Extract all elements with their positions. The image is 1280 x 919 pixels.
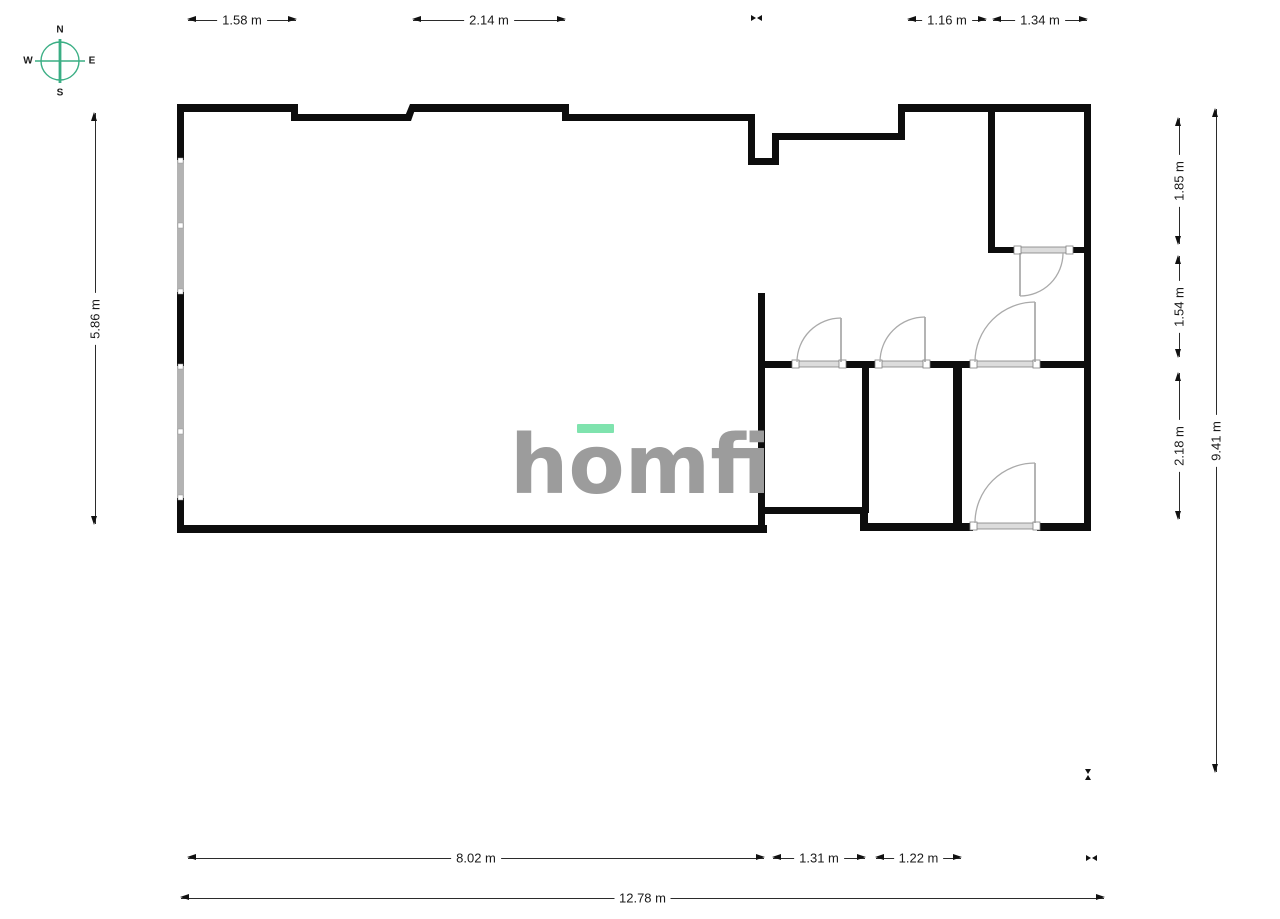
wall-segment xyxy=(898,104,1091,112)
window-mullion xyxy=(178,495,183,500)
wall-segment xyxy=(748,114,755,165)
door-swing-arc xyxy=(797,318,841,362)
arrow-right-icon xyxy=(756,854,765,860)
dimension-label: 1.31 m xyxy=(794,851,844,866)
floor-plan-page: N S W E homfi 1.58 m 2.14 m 1.16 m 1.34 … xyxy=(0,0,1280,919)
door-hinge xyxy=(970,360,977,368)
arrow-left-icon xyxy=(992,16,1001,22)
door-swing-arc xyxy=(975,463,1035,523)
arrow-right-icon xyxy=(288,16,297,22)
wall-bottom-exterior xyxy=(1037,523,1091,531)
arrow-up-icon xyxy=(1212,108,1218,117)
arrow-right-icon xyxy=(557,16,566,22)
window-mullion xyxy=(178,158,183,163)
arrow-left-icon xyxy=(772,854,781,860)
dimension-top-4: 1.34 m xyxy=(992,13,1088,27)
wall-segment xyxy=(291,114,407,121)
compass-north-label: N xyxy=(56,25,63,36)
dimension-label: 1.16 m xyxy=(922,13,972,28)
arrow-down-icon xyxy=(1175,511,1181,520)
wall-interior xyxy=(927,361,973,368)
wall-interior xyxy=(758,361,795,368)
arrow-up-icon xyxy=(1175,117,1181,126)
arrow-up-icon xyxy=(91,112,97,121)
collapsed-dimension-mark xyxy=(751,15,762,22)
compass-south-label: S xyxy=(57,88,64,99)
logo-accent-bar xyxy=(577,424,614,433)
wall-interior xyxy=(988,247,1018,253)
window-mullion xyxy=(178,364,183,369)
arrow-left-icon xyxy=(187,16,196,22)
wall-left-exterior xyxy=(177,292,184,366)
arrow-right-icon xyxy=(978,16,987,22)
wall-segment xyxy=(562,114,755,121)
dimension-label: 12.78 m xyxy=(614,891,671,906)
arrow-right-icon xyxy=(953,854,962,860)
collapsed-dimension-mark xyxy=(1085,769,1092,780)
dimension-label: 1.22 m xyxy=(894,851,944,866)
arrow-down-icon xyxy=(1175,236,1181,245)
arrow-left-icon xyxy=(187,854,196,860)
wall-interior xyxy=(953,368,962,528)
arrow-up-icon xyxy=(1175,255,1181,264)
logo-letter: h xyxy=(510,418,568,513)
dimension-left-1: 5.86 m xyxy=(88,112,102,525)
doors xyxy=(792,246,1073,530)
window-mullion xyxy=(178,223,183,228)
dimension-label: 8.02 m xyxy=(451,851,501,866)
dimension-label: 1.34 m xyxy=(1015,13,1065,28)
window-mullion xyxy=(178,289,183,294)
dimension-label: 1.54 m xyxy=(1172,281,1187,333)
dimension-right-2: 1.54 m xyxy=(1172,255,1186,358)
door-hinge xyxy=(839,360,846,368)
wall-left-exterior xyxy=(177,498,184,533)
dimension-label: 1.85 m xyxy=(1172,155,1187,207)
wall-interior xyxy=(988,112,995,253)
dimension-top-1: 1.58 m xyxy=(187,13,297,27)
dimension-label: 2.14 m xyxy=(464,13,514,28)
dimension-label: 1.58 m xyxy=(217,13,267,28)
collapsed-dimension-mark xyxy=(1086,855,1097,862)
dimension-right-total: 9.41 m xyxy=(1209,108,1223,773)
wall-interior xyxy=(1037,361,1091,368)
arrow-left-icon xyxy=(875,854,884,860)
dimension-bottom-total: 12.78 m xyxy=(180,891,1105,905)
wall-segment xyxy=(762,507,868,514)
dimension-right-1: 1.85 m xyxy=(1172,117,1186,245)
logo-letters: mfi xyxy=(625,418,771,513)
door-hinge xyxy=(1033,522,1040,530)
wall-interior xyxy=(843,361,878,368)
dimension-bottom-2: 1.31 m xyxy=(772,851,866,865)
door-panel xyxy=(878,361,927,367)
door-panel xyxy=(973,523,1037,529)
door-hinge xyxy=(923,360,930,368)
arrow-right-icon xyxy=(1079,16,1088,22)
wall-segment xyxy=(772,133,905,140)
door-hinge xyxy=(970,522,977,530)
door-panel xyxy=(973,361,1037,367)
door-panel xyxy=(795,361,843,367)
door-swing-arc xyxy=(975,302,1035,362)
wall-left-exterior xyxy=(177,104,184,160)
compass-west-label: W xyxy=(23,56,33,67)
door-hinge xyxy=(1014,246,1021,254)
arrow-left-icon xyxy=(180,894,189,900)
door-panel xyxy=(1018,247,1070,253)
dimension-label: 5.86 m xyxy=(88,293,103,345)
dimension-top-2: 2.14 m xyxy=(412,13,566,27)
door-swing-arc xyxy=(880,317,925,362)
arrow-left-icon xyxy=(907,16,916,22)
compass-east-label: E xyxy=(89,56,96,67)
dimension-right-3: 2.18 m xyxy=(1172,372,1186,520)
window-mullion xyxy=(178,429,183,434)
wall-bottom-exterior xyxy=(177,525,767,533)
door-hinge xyxy=(1033,360,1040,368)
arrow-right-icon xyxy=(857,854,866,860)
door-swing-arc xyxy=(1020,253,1063,296)
homfi-logo: homfi xyxy=(510,418,771,513)
wall-interior xyxy=(862,368,869,513)
arrow-down-icon xyxy=(1175,349,1181,358)
dimension-bottom-3: 1.22 m xyxy=(875,851,962,865)
arrow-down-icon xyxy=(1212,764,1218,773)
door-hinge xyxy=(875,360,882,368)
wall-segment xyxy=(410,104,569,112)
dimension-label: 2.18 m xyxy=(1172,420,1187,472)
door-hinge xyxy=(792,360,799,368)
arrow-up-icon xyxy=(1175,372,1181,381)
wall-segment xyxy=(177,104,298,112)
arrow-left-icon xyxy=(412,16,421,22)
wall-right-exterior xyxy=(1084,104,1091,531)
door-hinge xyxy=(1066,246,1073,254)
compass-rose: N S W E xyxy=(15,18,105,108)
dimension-label: 9.41 m xyxy=(1209,415,1224,467)
arrow-down-icon xyxy=(91,516,97,525)
dimension-bottom-1: 8.02 m xyxy=(187,851,765,865)
arrow-right-icon xyxy=(1096,894,1105,900)
dimension-top-3: 1.16 m xyxy=(907,13,987,27)
